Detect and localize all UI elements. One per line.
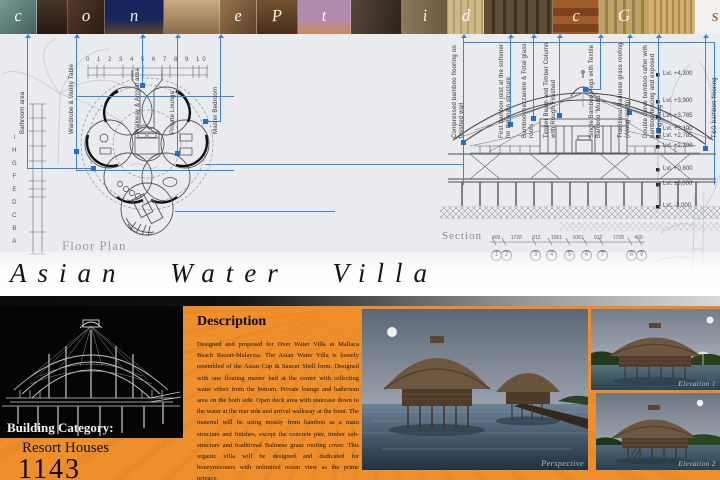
plan-annotation-label: Bathroom area [20, 42, 27, 134]
photo-tile [650, 0, 695, 34]
annotation-dot [74, 149, 79, 154]
strip-letter: s [711, 6, 719, 26]
perspective-label: Perspective [541, 459, 584, 468]
annotation-dot [91, 166, 96, 171]
annotation-leader [559, 38, 560, 115]
strip-letter: o [81, 6, 91, 27]
plan-grid-letters: I H G F E D C B A [12, 132, 17, 249]
wireframe-panel: Building Category: [0, 306, 183, 438]
elevation2-render: Elevation 2 [596, 393, 720, 470]
bottom-panel: Building Category: Resort Houses 1143 De… [0, 306, 720, 480]
plan-section-connector [175, 211, 335, 212]
elevation2-label: Elevation 2 [678, 460, 716, 468]
entry-number: 1143 [18, 454, 81, 480]
strip-letter: c [14, 6, 23, 26]
building-category-label: Building Category: [7, 420, 114, 436]
title-band: Asian Water Villa [0, 252, 720, 296]
level-marker: Lvl. -2,000 [663, 203, 691, 209]
photo-tile: c [553, 0, 599, 34]
plan-annotation-frame [76, 96, 234, 171]
photo-tile: e [220, 0, 257, 34]
annotation-leader [177, 38, 178, 153]
plan-section-connector [205, 164, 463, 165]
photo-tile: n [105, 0, 164, 34]
section-annotation-label: Timber Beam and Timber Column with Rough… [544, 42, 558, 138]
annotation-leader [76, 38, 77, 151]
photo-tile: P [257, 0, 298, 34]
section-annotation-label: Compressed bamboo flooring on finished w… [452, 42, 466, 138]
wireframe-villa-drawing [0, 306, 183, 438]
photo-tile: c [0, 0, 37, 34]
elevation1-render: Elevation 1 [591, 309, 720, 390]
strip-letter: G [617, 6, 631, 27]
perspective-render-art [362, 309, 588, 470]
photo-tile: s [695, 0, 720, 34]
plan-annotation-label: Walkway & Arrival area [135, 42, 142, 134]
photo-tile [37, 0, 68, 34]
photo-tile: d [448, 0, 484, 34]
section-label: Section [442, 230, 482, 242]
description-heading: Description [197, 314, 359, 330]
photo-tile: t [298, 0, 351, 34]
section-annotation-label: T&G bamboo flooring [712, 42, 719, 138]
photo-tile [351, 0, 402, 34]
section-annotation-label: Bamboo mezzanine & Total glass roofs [522, 42, 536, 138]
strip-letter: d [461, 6, 471, 27]
annotation-leader [220, 38, 221, 122]
description-block: Description Designed and proposed for Ov… [197, 314, 359, 480]
section-annotation-label: Double curve bamboo rafter with bamboo b… [643, 42, 664, 138]
strip-letter: c [571, 6, 580, 26]
annotation-dot [461, 140, 466, 145]
annotation-leader [27, 38, 28, 169]
elevation2-render-art [596, 393, 720, 470]
annotation-leader [27, 168, 93, 169]
photo-tile [164, 0, 220, 34]
annotation-dot [203, 119, 208, 124]
annotation-dot [583, 87, 588, 92]
gradient-divider [0, 296, 720, 306]
project-title: Asian Water Villa [10, 258, 438, 289]
plan-annotation-label: Private Lounge [170, 42, 177, 134]
elevation1-label: Elevation 1 [678, 380, 716, 388]
section-annotation-label: Single Bamboo Pegs with Textile Bamboo '… [589, 42, 603, 138]
photo-tile: o [68, 0, 105, 34]
annotation-leader [142, 38, 143, 85]
plan-grid-numbers: 0 1 2 3 4 5 6 7 8 9 10 [86, 57, 209, 63]
strip-letter: P [271, 6, 283, 27]
plan-annotation-label: Master Bedroom [213, 42, 220, 134]
strip-letter: t [321, 6, 327, 26]
perspective-render: Perspective [362, 309, 588, 470]
strip-letter: e [234, 6, 243, 26]
description-body: Designed and proposed for Over Water Vil… [197, 339, 359, 480]
photo-tile: i [402, 0, 448, 34]
annotation-dot [175, 151, 180, 156]
strip-letter: i [421, 6, 427, 26]
section-annotation-label: First bamboo joist at the softener for t… [499, 42, 513, 138]
photo-tile: G [599, 0, 650, 34]
section-dims: 400 1728 912 1061 1061 912 1728 400 [492, 235, 643, 241]
annotation-leader [705, 38, 706, 148]
photo-tile [484, 0, 553, 34]
annotation-dot [703, 146, 708, 151]
presentation-board: c o n e P t i d c G s [0, 0, 720, 480]
elevation1-render-art [591, 309, 720, 390]
concept-photo-strip: c o n e P t i d c G s [0, 0, 720, 34]
strip-letter: n [129, 6, 139, 27]
section-annotation-label: Traditional Balinese grass roofing (Alan… [618, 42, 632, 138]
plan-annotation-label: Wardrobe & Vanity Table [69, 42, 76, 134]
